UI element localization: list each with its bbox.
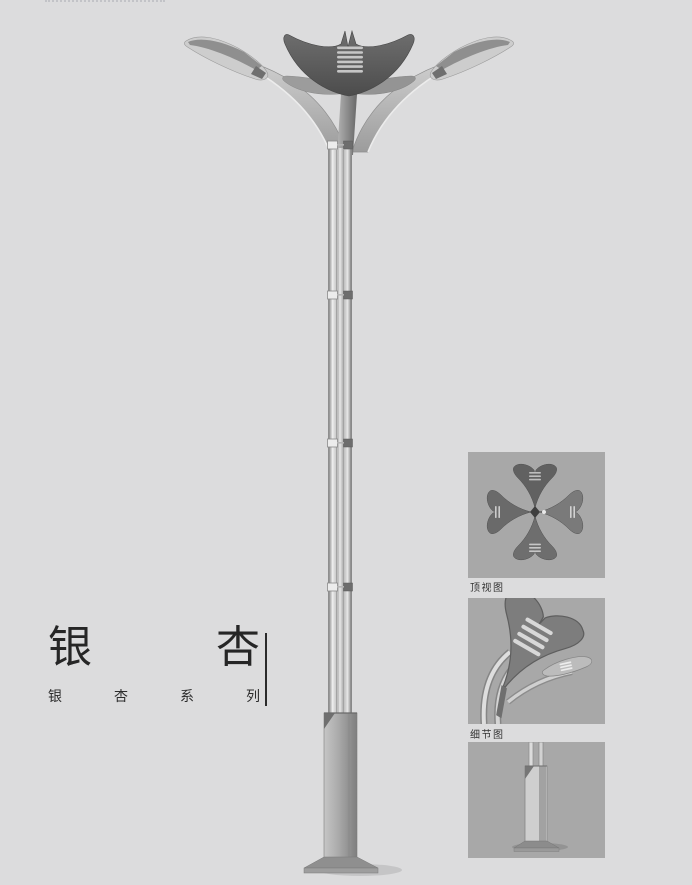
series-subtitle: 银杏系列 xyxy=(48,689,262,704)
lamp-top-view-illustration xyxy=(468,452,605,578)
lamp-head-detail-illustration xyxy=(468,598,605,724)
series-branding: 银杏 银杏系列 xyxy=(48,624,278,704)
detail-panel-head-detail xyxy=(468,598,605,724)
series-title: 银杏 xyxy=(48,624,264,672)
lamp-pole-base-illustration xyxy=(468,742,605,858)
detail-panel-top-view xyxy=(468,452,605,578)
base-plate xyxy=(304,857,378,873)
panel-caption-top-view: 顶视图 xyxy=(470,579,505,594)
pole xyxy=(328,148,352,715)
left-lamp-head xyxy=(184,37,267,80)
base-column xyxy=(324,713,357,859)
panel-caption-head-detail: 细节图 xyxy=(470,726,505,741)
detail-panel-pole-base xyxy=(468,742,605,858)
base-detail-column xyxy=(525,766,547,843)
title-divider-rule xyxy=(265,633,267,706)
right-lamp-head xyxy=(430,37,513,80)
